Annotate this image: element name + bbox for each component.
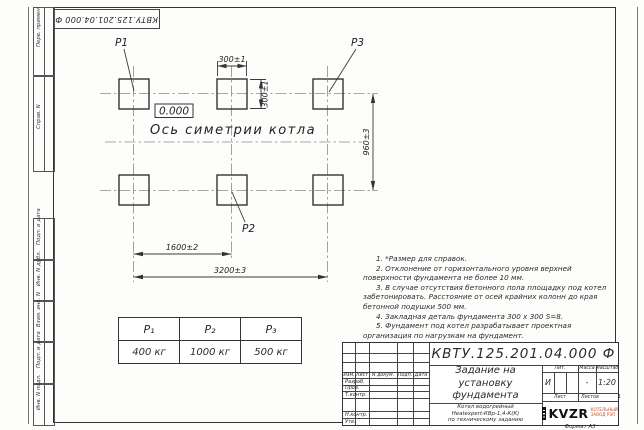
kvzr-logo-icon [542,407,546,420]
dim-arrow [222,252,232,256]
note-item: 4. Закладная деталь фундамента 300 х 300… [363,312,617,322]
subtitle-line: Heatexpert-КВр-1,4-К(К) [452,411,520,418]
rev-header-data: Дата [413,372,429,378]
load-table-value-p2: 1000 кг [179,341,240,363]
dim-arrow [218,64,227,68]
format-label: Формат А3 [538,424,622,430]
dim-arrow [134,252,144,256]
note-item: 5. Фундамент под котел разрабатывает про… [363,321,617,340]
title-block: Изм. Лист N докум. Подп. Дата Разраб. Пр… [342,342,619,426]
mass-value: - [578,372,596,393]
dim-col-spacing: 1600±2 [166,243,198,252]
company-name: KVZR [548,406,588,421]
document-name-line: установку [459,378,513,391]
dim-arrow [318,275,328,279]
titleblock-line [343,362,429,363]
sheets-cell: Листов 1 [578,393,624,401]
dim-pad-height: 300±1 [261,80,270,107]
subtitle-line: Котел водогрейный [457,404,514,411]
leader-p2 [232,192,245,222]
foundation-pad [217,79,247,109]
note-item: 3. В случае отсутствия бетонного пола пл… [363,283,617,312]
point-label-p1: P1 [115,37,128,49]
foundation-pad [119,79,149,109]
sign-row-utv: Утв. [343,418,371,425]
sign-row-tkontr: Т.контр. [343,391,371,398]
scale-value: 1:20 [596,372,618,393]
titleblock-line [343,353,429,354]
titleblock-line [397,343,398,425]
dim-pad-width: 300±1 [218,55,245,64]
note-item: 1. *Размер для справок. [363,254,617,264]
titleblock-line [566,372,567,393]
load-table-value-p3: 500 кг [240,341,301,363]
company-subtitle: КОТЕЛЬНЫЙ ЗАВОД РЭП [591,408,618,418]
document-name-line: Задание на [455,365,516,378]
scale-header: Масштаб [596,365,618,372]
dim-total-span: 3200±3 [214,266,246,275]
load-table: P₁ P₂ P₃ 400 кг 1000 кг 500 кг [118,317,302,364]
dim-arrow [371,94,375,104]
foundation-pad [313,79,343,109]
point-label-p2: P2 [242,223,255,235]
sheets-label: Листов [581,395,599,400]
title-block-doc-number: КВТУ.125.201.04.000 Ф [429,343,618,365]
load-table-header-p3: P₃ [240,318,301,340]
dim-row-spacing: 960±3 [362,128,371,155]
rev-header-ndokum: N докум. [369,372,397,378]
title-block-document-name: Задание на установку фундамента [429,365,542,403]
load-table-header-row: P₁ P₂ P₃ [119,318,301,340]
load-table-header-p1: P₁ [119,318,179,340]
foundation-pad [119,175,149,205]
titleblock-line [554,372,555,393]
subtitle-line: по техническому заданию [448,417,523,424]
mass-header: Масса [578,365,596,372]
foundation-pad [313,175,343,205]
dim-arrow [134,275,144,279]
sign-row-nkontr: Н.контр. [343,411,371,418]
load-table-header-p2: P₂ [179,318,240,340]
dim-arrow [238,64,247,68]
dim-arrow [371,181,375,191]
point-label-p3: P3 [351,37,364,49]
note-item: 2. Отклонение от горизонтального уровня … [363,264,617,283]
load-table-value-p1: 400 кг [119,341,179,363]
title-block-subtitle: Котел водогрейный Heatexpert-КВр-1,4-К(К… [429,403,542,425]
lit-value: И [542,372,554,393]
sign-row-razrab: Разраб. [343,378,371,385]
sheets-value: 1 [618,395,621,400]
company-logo: KVZR КОТЕЛЬНЫЙ ЗАВОД РЭП [542,401,618,425]
load-table-value-row: 400 кг 1000 кг 500 кг [119,340,301,363]
drawing-sheet: КВТУ.125.201.04.000 Ф Перв. примен. Спра… [0,0,644,430]
titleblock-line [413,343,414,425]
rev-header-podp: Подп. [397,372,413,378]
document-name-line: фундамента [452,390,518,403]
sign-row-blank [343,398,371,411]
leader-p1 [124,49,134,91]
sheet-label: Лист [542,393,578,401]
company-subtitle-line: ЗАВОД РЭП [591,413,618,418]
technical-notes: 1. *Размер для справок. 2. Отклонение от… [363,254,617,340]
foundation-pad [217,175,247,205]
elevation-value: 0.000 [159,106,189,118]
lit-header: Лит. [542,365,578,372]
symmetry-axis-label: Ось симетрии котла [150,123,316,138]
